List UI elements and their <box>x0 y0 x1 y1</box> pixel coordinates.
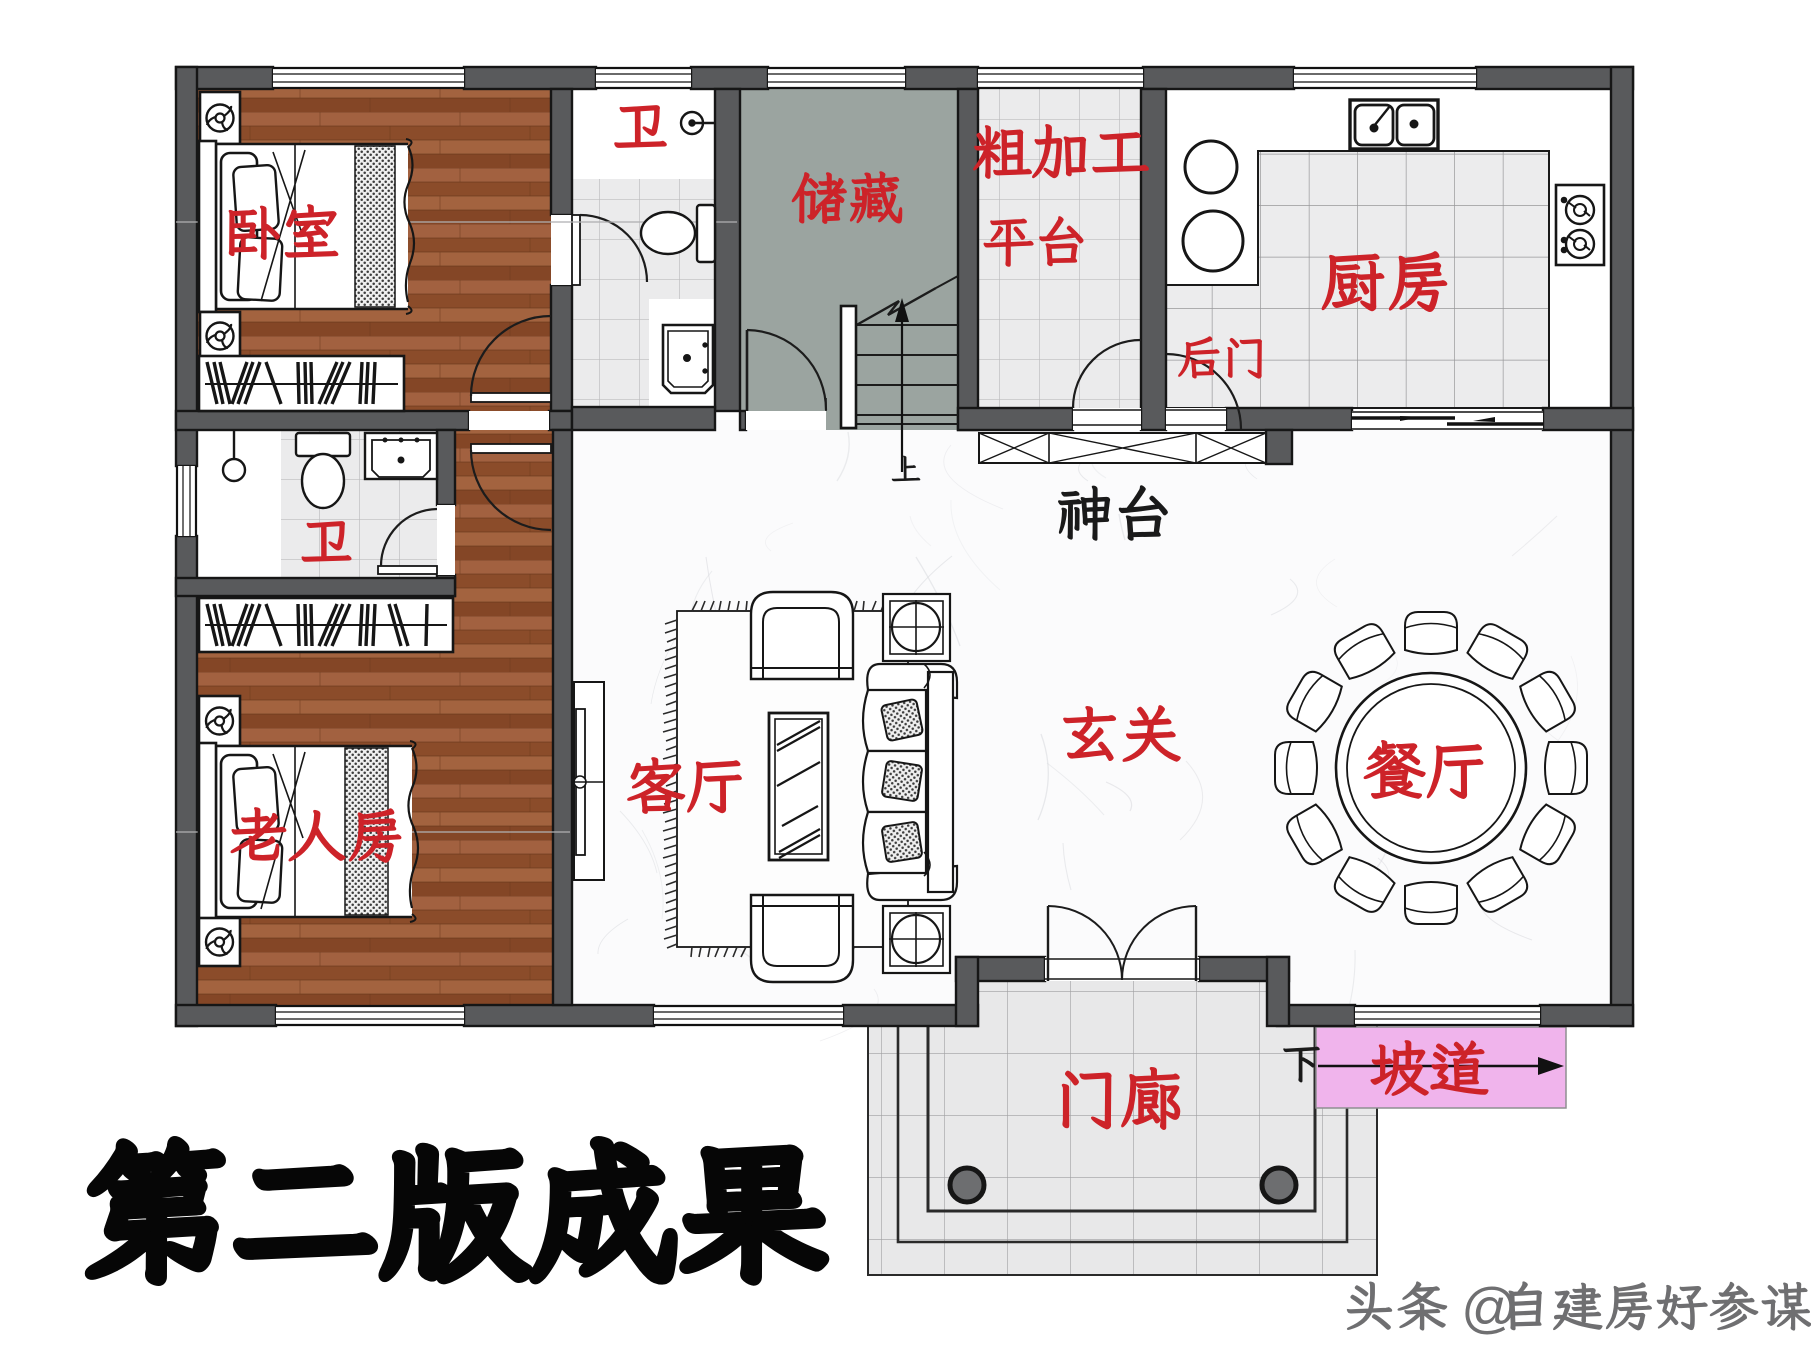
svg-text:@: @ <box>1461 1276 1518 1339</box>
